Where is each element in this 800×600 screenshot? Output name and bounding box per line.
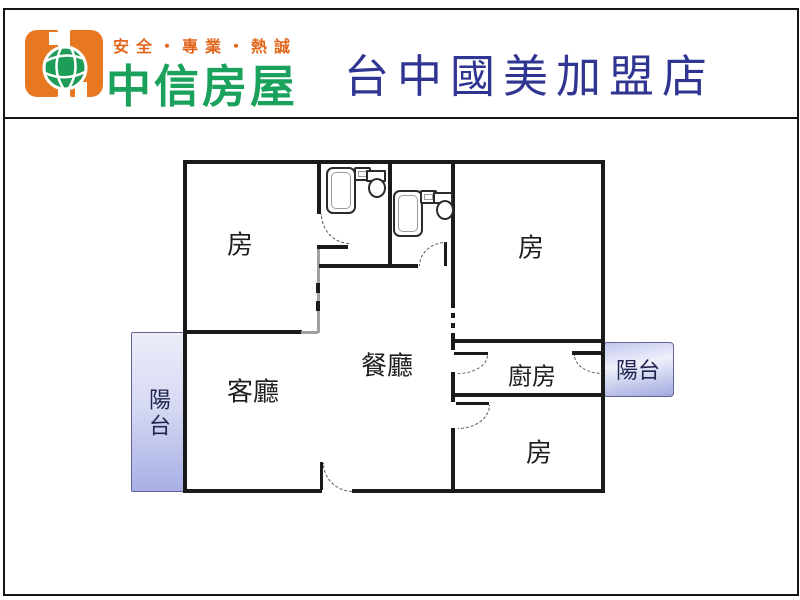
wall-segment — [601, 160, 605, 493]
bathtub-icon — [393, 190, 423, 237]
wall-segment — [388, 160, 392, 266]
store-title: 台中國美加盟店 — [344, 40, 715, 105]
bedroom-top-left-label: 房 — [227, 225, 253, 262]
chinatrust-logo — [25, 30, 103, 97]
balcony-right-label: 陽台 — [616, 353, 660, 385]
header-separator — [3, 117, 797, 119]
wall-segment — [451, 372, 455, 402]
wall-segment — [352, 489, 605, 493]
interior-wall-gray — [301, 331, 318, 334]
bedroom-top-right-label: 房 — [518, 228, 544, 265]
brand-name: 中信房屋 — [106, 50, 298, 115]
wall-segment — [317, 160, 321, 214]
toilet-icon — [436, 200, 454, 220]
wall-segment — [451, 339, 605, 343]
sliding-door-wall — [451, 303, 455, 333]
living-room-label: 客廳 — [227, 372, 279, 409]
wall-segment — [451, 393, 605, 397]
wall-segment — [185, 330, 302, 334]
wall-segment — [319, 264, 418, 268]
toilet-icon — [368, 178, 386, 198]
globe-icon — [41, 44, 89, 92]
bedroom-bottom-right-label: 房 — [526, 433, 552, 470]
wall-segment — [317, 245, 348, 249]
wall-segment — [451, 428, 455, 493]
dining-room-label: 餐廳 — [361, 346, 413, 383]
flyer-image: 安全・專業・熱誠 中信房屋 台中國美加盟店 — [0, 0, 800, 600]
wall-segment — [183, 489, 322, 493]
wall-segment — [316, 283, 320, 293]
wall-segment — [316, 301, 320, 311]
wall-segment — [183, 160, 605, 164]
balcony-left-label: 陽台 — [141, 388, 173, 440]
door-leaf — [572, 351, 603, 355]
kitchen-label: 廚房 — [508, 357, 556, 392]
bathtub-icon — [326, 167, 356, 214]
wall-segment — [451, 160, 455, 303]
wall-segment — [183, 160, 187, 493]
